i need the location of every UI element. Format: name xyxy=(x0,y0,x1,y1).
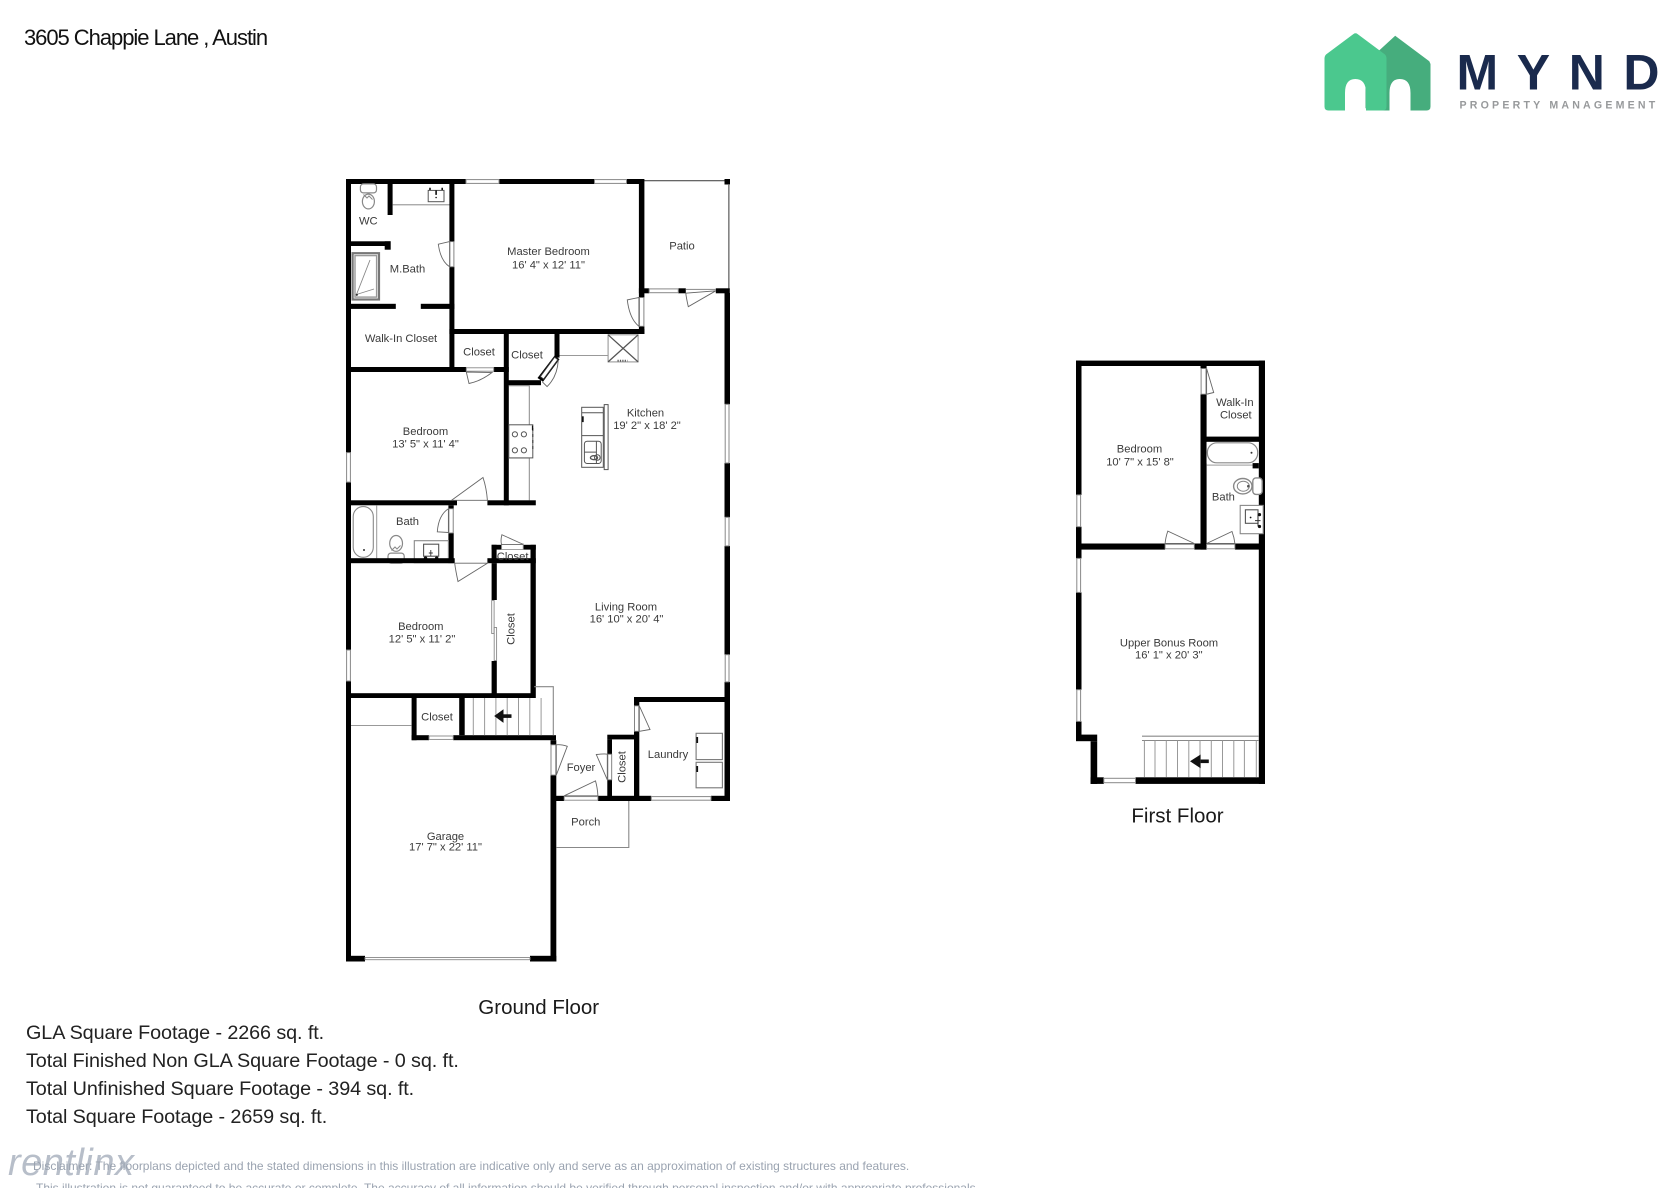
svg-text:16' 10" x 20' 4": 16' 10" x 20' 4" xyxy=(590,614,664,626)
svg-text:Closet: Closet xyxy=(463,347,496,359)
svg-text:Bedroom: Bedroom xyxy=(398,621,443,633)
svg-text:WC: WC xyxy=(359,216,378,228)
svg-text:Bedroom: Bedroom xyxy=(1117,444,1162,456)
svg-text:M.Bath: M.Bath xyxy=(390,264,425,276)
svg-text:Porch: Porch xyxy=(571,816,600,828)
svg-text:10' 7" x 15' 8": 10' 7" x 15' 8" xyxy=(1106,457,1174,469)
svg-text:Bedroom: Bedroom xyxy=(403,426,448,438)
svg-text:12' 5" x 11' 2": 12' 5" x 11' 2" xyxy=(389,633,456,645)
svg-text:19' 2" x 18' 2": 19' 2" x 18' 2" xyxy=(613,420,681,432)
svg-text:Laundry: Laundry xyxy=(648,749,689,761)
svg-text:Living Room: Living Room xyxy=(595,602,657,614)
svg-text:Closet: Closet xyxy=(616,750,628,783)
svg-text:Closet: Closet xyxy=(497,551,530,563)
svg-text:Closet: Closet xyxy=(421,712,454,724)
svg-text:Bath: Bath xyxy=(396,516,419,528)
svg-text:13' 5" x 11' 4": 13' 5" x 11' 4" xyxy=(392,438,459,450)
svg-text:Bath: Bath xyxy=(1212,492,1235,504)
svg-text:16' 1" x 20' 3": 16' 1" x 20' 3" xyxy=(1135,649,1203,661)
svg-text:Closet: Closet xyxy=(505,612,517,645)
svg-text:First Floor: First Floor xyxy=(1131,805,1223,828)
svg-text:17' 7" x 22' 11": 17' 7" x 22' 11" xyxy=(409,841,482,853)
svg-text:Closet: Closet xyxy=(1220,410,1253,422)
svg-text:Patio: Patio xyxy=(669,241,695,253)
svg-text:Walk-In Closet: Walk-In Closet xyxy=(365,333,438,345)
svg-text:16' 4" x 12' 11": 16' 4" x 12' 11" xyxy=(512,259,585,271)
svg-text:Closet: Closet xyxy=(511,350,544,362)
svg-text:Walk-In: Walk-In xyxy=(1216,397,1254,409)
svg-text:Kitchen: Kitchen xyxy=(627,408,664,420)
svg-text:Upper Bonus Room: Upper Bonus Room xyxy=(1120,637,1218,649)
svg-text:Ground Floor: Ground Floor xyxy=(478,996,599,1019)
svg-text:Foyer: Foyer xyxy=(567,762,596,774)
svg-text:Master Bedroom: Master Bedroom xyxy=(507,246,590,258)
